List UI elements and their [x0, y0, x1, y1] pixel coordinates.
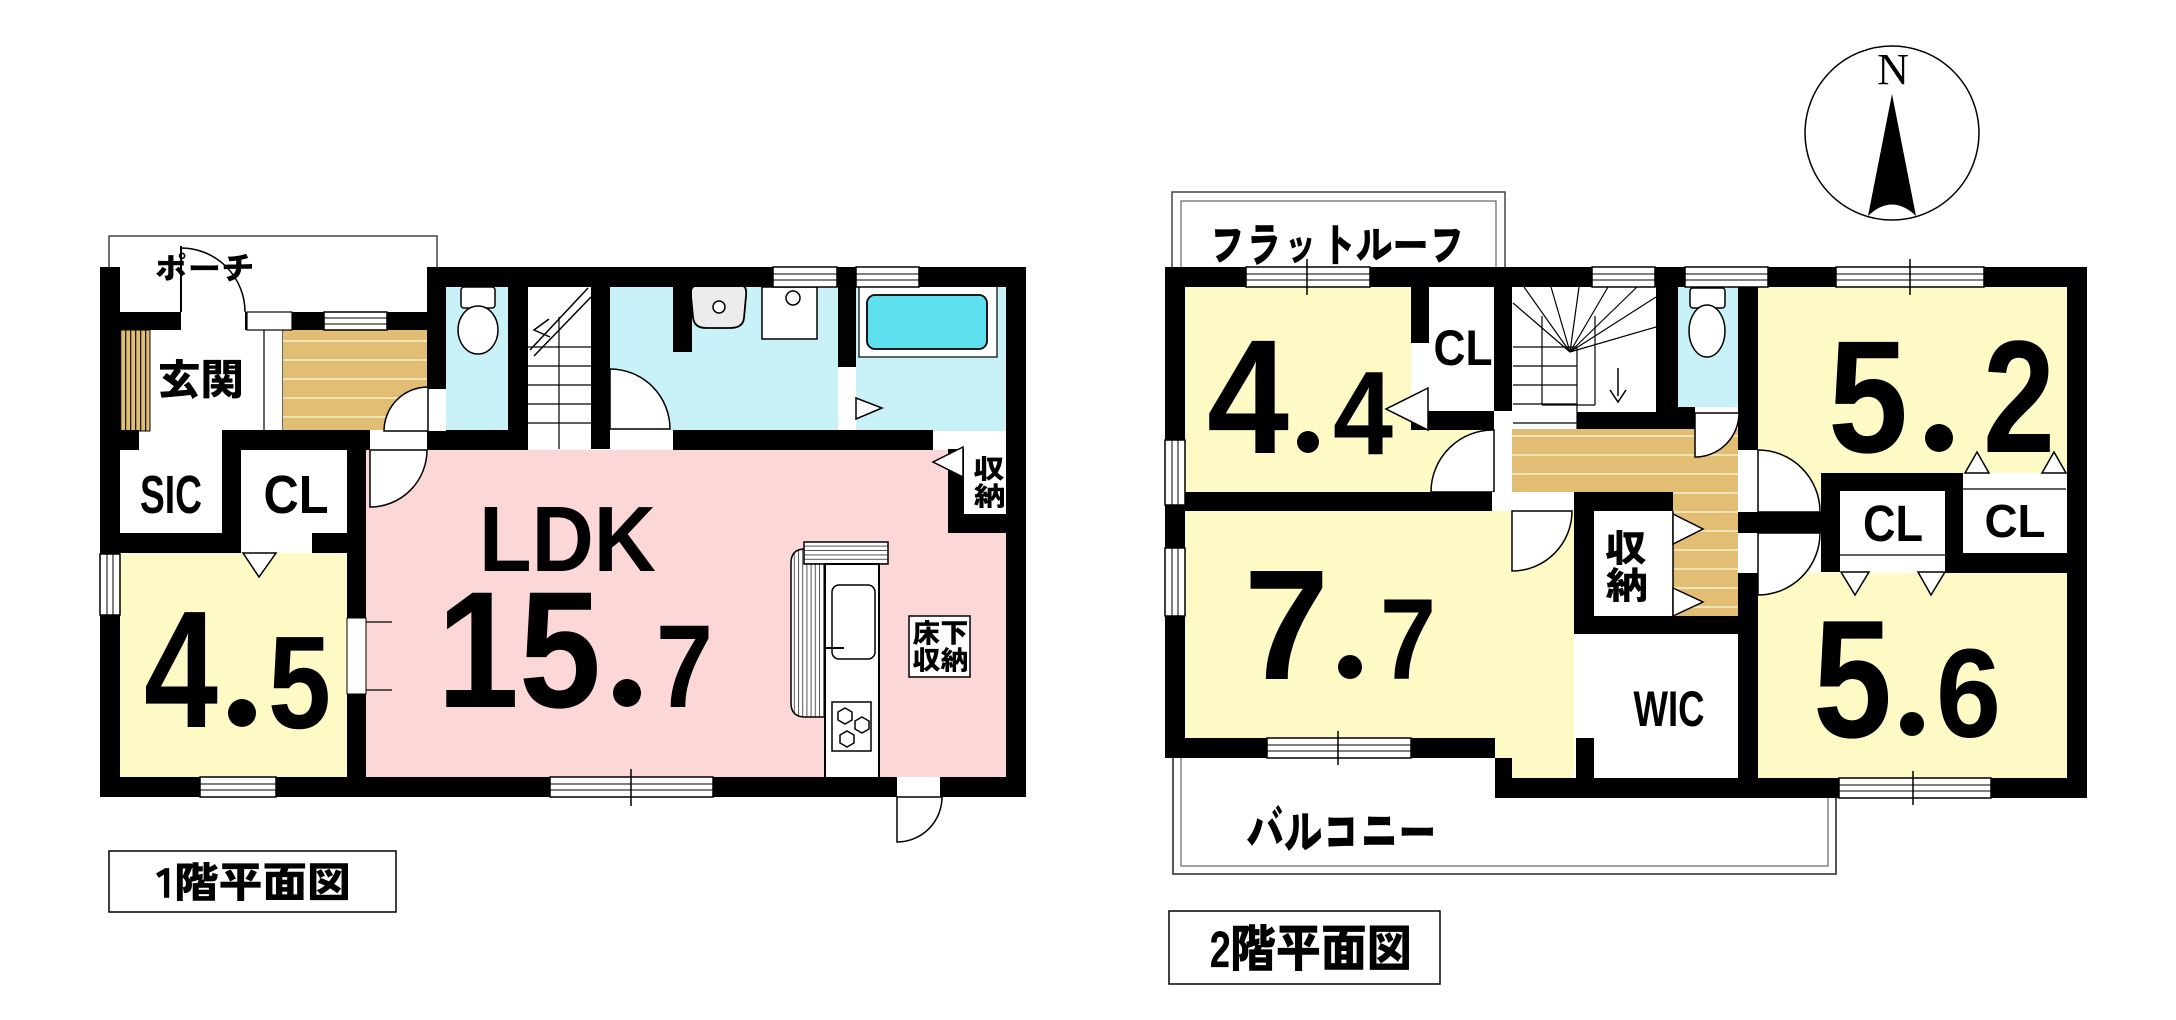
svg-text:CL: CL	[1434, 320, 1493, 376]
svg-text:CL: CL	[264, 465, 329, 525]
svg-text:SIC: SIC	[140, 465, 202, 525]
svg-text:CL: CL	[1985, 495, 2046, 547]
svg-text:4: 4	[144, 577, 218, 763]
svg-text:5: 5	[268, 609, 331, 756]
svg-text:4: 4	[1207, 305, 1289, 488]
svg-text:CL: CL	[1863, 495, 1923, 552]
svg-text:7: 7	[1244, 538, 1329, 713]
svg-text:4: 4	[1333, 347, 1393, 480]
svg-text:2: 2	[1983, 307, 2055, 486]
svg-text:5: 5	[1828, 307, 1908, 486]
svg-text:7: 7	[656, 601, 713, 733]
svg-text:WIC: WIC	[1634, 681, 1705, 737]
svg-text:15: 15	[437, 558, 601, 743]
svg-text:7: 7	[1380, 576, 1436, 704]
svg-text:6: 6	[1936, 623, 2001, 764]
svg-text:5: 5	[1813, 585, 1892, 773]
svg-text:N: N	[1877, 45, 1909, 94]
